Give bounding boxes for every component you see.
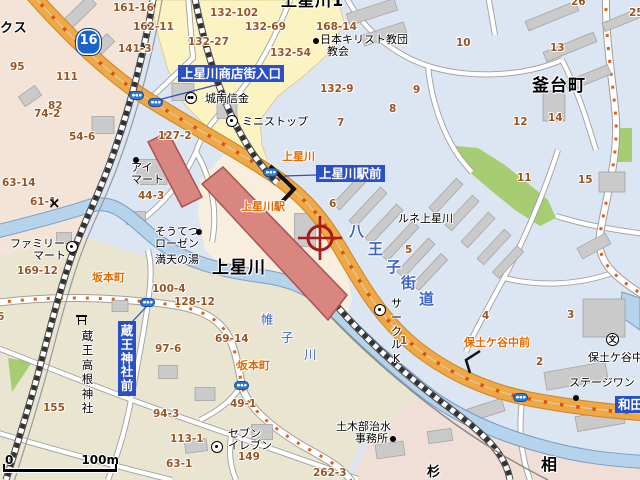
rosen-dot-icon <box>196 229 202 235</box>
busstop-shotengai-iriguchi: 上星川商店街入口 <box>178 65 284 82</box>
scale-distance-label: 100m <box>81 453 119 467</box>
district-numbers-45: 3 <box>567 310 574 321</box>
poi-familymart-line2: マート <box>33 250 66 262</box>
place-ai-partial: 相 <box>541 457 558 474</box>
district-numbers-2: 141-3 <box>118 44 152 55</box>
district-numbers-5: 132-27 <box>188 37 229 48</box>
poi-familymart-line1: ファミリー <box>10 238 65 250</box>
district-numbers-44: 4 <box>482 311 489 322</box>
stage-one-dot-icon <box>573 395 579 401</box>
road-name-chars-3: 街 <box>401 276 416 292</box>
poi-manten-no-yu: 満天の湯 <box>155 254 199 266</box>
school-icon: 文 <box>606 333 619 346</box>
circle-k-store-icon <box>374 304 386 316</box>
poi-ministop: ミニストップ <box>242 116 308 128</box>
ai-mart-dot-icon <box>133 157 139 163</box>
district-numbers-13: 54-6 <box>69 132 95 143</box>
ministop-store-icon <box>226 115 238 127</box>
traffic-signal-icon-2 <box>263 168 278 177</box>
scale-start-label: 0 <box>5 453 13 467</box>
intersection-kamihoshikawa: 上星川 <box>282 151 315 163</box>
intersection-sakamotocho-1: 坂本町 <box>92 272 125 284</box>
familymart-store-icon <box>66 241 78 253</box>
church-dot-icon <box>313 38 319 44</box>
poi-japan-christ-church: 日本キリスト教団 <box>320 34 408 46</box>
district-numbers-42: 49-1 <box>230 399 256 410</box>
district-numbers-4: 132-69 <box>245 22 286 33</box>
traffic-signal-icon-5 <box>513 393 528 402</box>
district-numbers-17: 10 <box>456 38 471 49</box>
district-numbers-27: 6 <box>329 199 336 210</box>
traffic-signal-icon-0 <box>129 91 144 100</box>
poi-rune-kamihoshikawa: ルネ上星川 <box>398 213 453 225</box>
poi-stage-one: ステージワン <box>569 377 635 389</box>
road-name-chars-2: 子 <box>386 260 401 276</box>
district-numbers-36: 6 <box>0 312 4 323</box>
district-numbers-0: 161-16 <box>113 3 154 14</box>
district-numbers-14: 127-2 <box>158 131 192 142</box>
intersection-kamihoshikawa-sta: 上星川駅 <box>241 201 285 213</box>
district-numbers-32: 100-4 <box>152 284 186 295</box>
busstop-zao-jinja-mae: 蔵王神社前 <box>118 321 136 396</box>
traffic-signal-icon-1 <box>148 98 163 107</box>
poi-zao-takane-shrine: 蔵王高根神社 <box>80 329 95 415</box>
district-numbers-24: 63-14 <box>2 178 36 189</box>
scale-bar-line <box>3 469 117 472</box>
poi-church-line2: 教会 <box>327 46 349 58</box>
district-numbers-30: 5 <box>405 245 412 256</box>
torii-shrine-icon <box>76 315 87 325</box>
district-numbers-40: 63-1 <box>166 459 192 470</box>
district-numbers-6: 132-54 <box>270 48 311 59</box>
district-numbers-10: 111 <box>56 72 78 83</box>
road-name-chars-1: 王 <box>368 242 383 258</box>
police-x-icon: × <box>48 196 61 211</box>
civil-office-dot-icon <box>390 436 396 442</box>
poi-ai-mart-line2: マート <box>131 174 164 186</box>
road-name-chars-0: 八 <box>349 224 364 240</box>
traffic-signal-icon-3 <box>140 298 155 307</box>
map-canvas[interactable]: 上星川1釜台町上星川相杉クス161-16162-11141-3132-10213… <box>0 0 640 480</box>
district-numbers-3: 132-102 <box>210 8 258 19</box>
shinkin-bank-icon <box>185 92 197 104</box>
district-numbers-16: 25 <box>629 8 640 19</box>
district-numbers-41: 149 <box>238 452 260 463</box>
route-16-shield: 16 <box>75 28 102 56</box>
district-numbers-37: 155 <box>43 403 65 414</box>
poi-ai-mart-line1: アイ <box>131 162 152 174</box>
place-kamihoshikawa-1: 上星川1 <box>281 0 344 10</box>
district-numbers-28: 11 <box>517 173 532 184</box>
place-sugi-partial: 杉 <box>427 466 441 480</box>
poi-hodogaya-junior-high: 保土ケ谷中 <box>588 352 640 364</box>
district-numbers-19: 9 <box>413 85 420 96</box>
district-numbers-25: 44-3 <box>138 191 164 202</box>
district-numbers-18: 13 <box>550 43 565 54</box>
traffic-signal-icon-4 <box>234 381 249 390</box>
poi-sotetsu-rosen-line1: そうてつ <box>155 226 199 238</box>
place-kamihoshikawa: 上星川 <box>212 260 266 278</box>
poi-seven-eleven-line1: セブン <box>228 428 261 440</box>
district-numbers-23: 14 <box>548 113 563 124</box>
river-name-chars-0: 帷 <box>261 313 274 326</box>
district-numbers-22: 12 <box>513 117 528 128</box>
district-numbers-12: 74-2 <box>34 109 60 120</box>
district-numbers-46: 2 <box>536 357 543 368</box>
place-kamadaicho: 釜台町 <box>532 78 586 96</box>
district-numbers-35: 97-6 <box>155 344 181 355</box>
busstop-wada-partial: 和田 <box>615 396 640 413</box>
poi-sotetsu-rosen-line2: ローゼン <box>155 238 199 250</box>
district-numbers-29: 15 <box>578 175 593 186</box>
district-numbers-31: 169-12 <box>17 266 58 277</box>
intersection-sakamotocho-2: 坂本町 <box>237 360 270 372</box>
busstop-kamihoshikawa-ekimae: 上星川駅前 <box>316 165 385 182</box>
district-numbers-38: 94-3 <box>153 409 179 420</box>
place-kusu-partial: クス <box>0 22 28 36</box>
poi-circle-k: サークルK <box>389 297 404 366</box>
district-numbers-1: 162-11 <box>133 22 174 33</box>
district-numbers-21: 7 <box>337 118 344 129</box>
river-name-chars-1: 子 <box>281 331 294 344</box>
map-labels-layer: 上星川1釜台町上星川相杉クス161-16162-11141-3132-10213… <box>0 0 640 480</box>
district-numbers-39: 113-1 <box>170 434 204 445</box>
poi-jonan-shinkin-bank: 城南信金 <box>205 93 249 105</box>
district-numbers-20: 8 <box>389 104 396 115</box>
district-numbers-33: 128-12 <box>174 297 215 308</box>
district-numbers-47: 262-3 <box>313 468 347 479</box>
poi-civil-engineering-office-line2: 事務所 <box>355 433 388 445</box>
poi-seven-eleven-line2: イレブン <box>228 440 272 452</box>
road-name-chars-4: 道 <box>419 292 434 308</box>
district-numbers-34: 69-14 <box>215 334 249 345</box>
district-numbers-15: 26 <box>571 0 586 8</box>
intersection-hodogayachu-mae: 保土ケ谷中前 <box>464 337 530 349</box>
river-name-chars-2: 川 <box>304 348 317 361</box>
district-numbers-9: 95 <box>10 62 25 73</box>
district-numbers-8: 132-9 <box>320 84 354 95</box>
seven-eleven-store-icon <box>211 441 223 453</box>
poi-civil-engineering-office-line1: 土木部治水 <box>336 421 391 433</box>
district-numbers-7: 168-14 <box>316 22 357 33</box>
